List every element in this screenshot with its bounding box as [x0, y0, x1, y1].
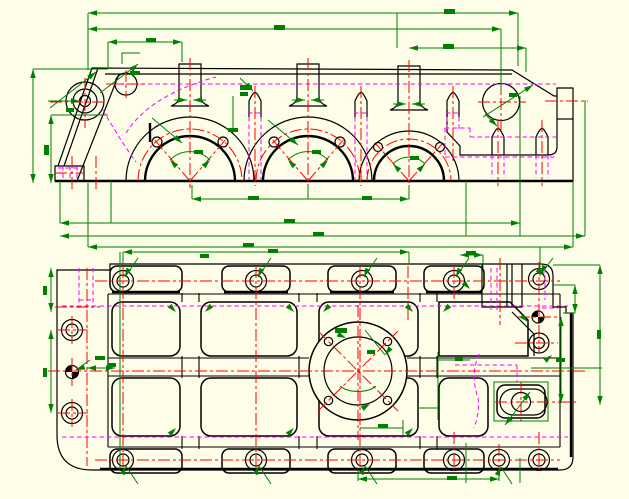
layer-pockets: [110, 266, 545, 473]
cad-drawing-viewport: CAD engineering drawing - gearbox housin…: [0, 0, 629, 499]
cad-drawing-canvas: [0, 0, 629, 499]
